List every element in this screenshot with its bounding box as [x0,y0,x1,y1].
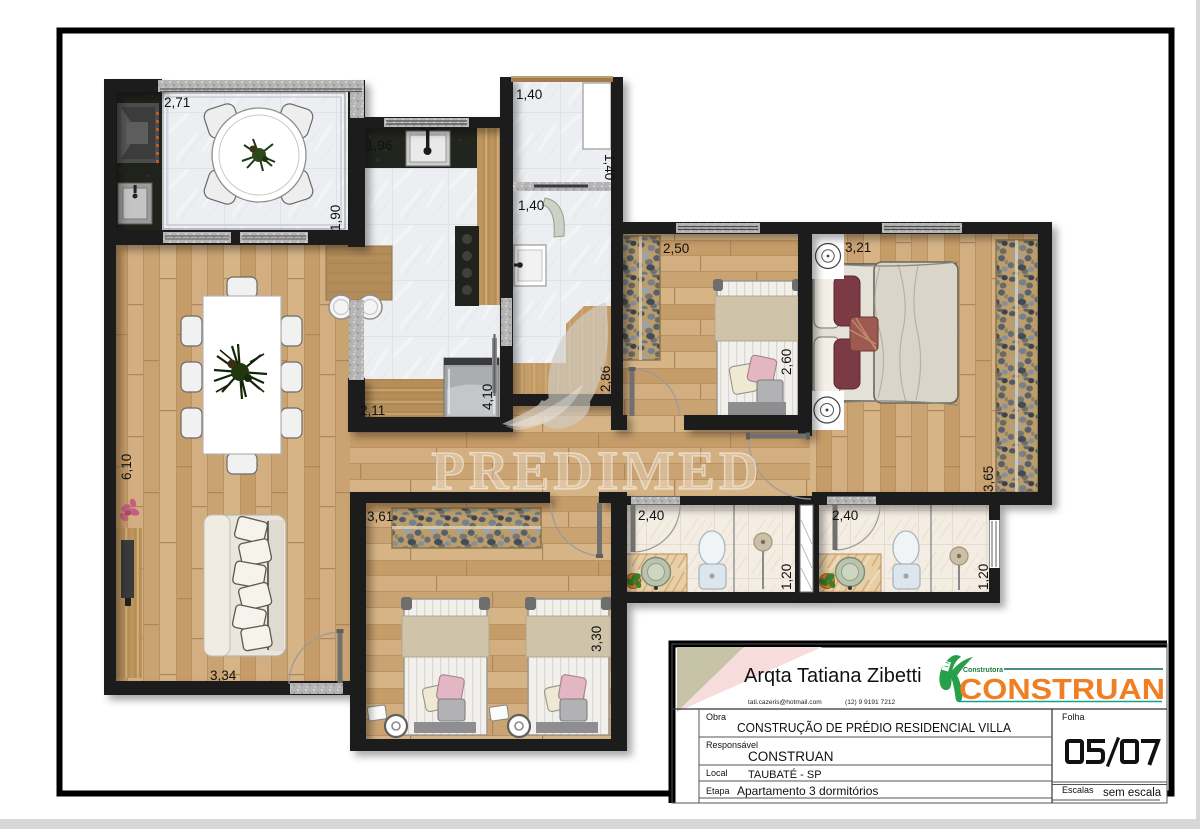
svg-text:tati.cazeris@hotmail.com: tati.cazeris@hotmail.com [748,699,822,706]
svg-text:3,30: 3,30 [589,626,604,652]
svg-text:2,71: 2,71 [164,95,190,110]
svg-text:Escalas: Escalas [1062,785,1094,795]
svg-text:1,96: 1,96 [366,138,392,153]
svg-text:1,40: 1,40 [602,154,617,180]
svg-text:Folha: Folha [1062,712,1085,722]
svg-text:1,40: 1,40 [516,87,542,102]
svg-text:Construtora: Construtora [963,667,1003,674]
svg-text:2,40: 2,40 [638,508,664,523]
svg-text:1,90: 1,90 [328,205,343,231]
svg-text:4,10: 4,10 [480,384,495,410]
svg-text:2,50: 2,50 [663,241,689,256]
svg-text:2,40: 2,40 [832,508,858,523]
svg-text:(12) 9 9191 7212: (12) 9 9191 7212 [845,699,896,706]
svg-text:3,61: 3,61 [367,509,393,524]
svg-text:3,65: 3,65 [981,466,996,492]
svg-text:6,10: 6,10 [119,454,134,480]
svg-text:Obra: Obra [706,712,726,722]
svg-text:2,60: 2,60 [779,349,794,375]
svg-text:sem escala: sem escala [1103,787,1162,799]
svg-text:Apartamento 3 dormitórios: Apartamento 3 dormitórios [737,784,878,798]
svg-text:3,34: 3,34 [210,668,237,683]
svg-text:1,20: 1,20 [779,564,794,590]
svg-text:CONSTRUÇÃO DE PRÉDIO RESIDENCI: CONSTRUÇÃO DE PRÉDIO RESIDENCIAL VILLA [737,720,1012,735]
svg-text:1,20: 1,20 [976,564,991,590]
svg-text:PREDIMED: PREDIMED [431,440,762,501]
svg-text:2,11: 2,11 [360,403,385,418]
svg-text:Etapa: Etapa [706,786,730,796]
svg-text:CONSTRUAN: CONSTRUAN [748,749,834,764]
svg-text:TAUBATÉ - SP: TAUBATÉ - SP [748,768,822,781]
svg-text:3,21: 3,21 [845,240,871,255]
svg-text:1,40: 1,40 [518,198,544,213]
svg-text:Local: Local [706,768,728,778]
svg-text:Arqta Tatiana Zibetti: Arqta Tatiana Zibetti [744,665,922,687]
